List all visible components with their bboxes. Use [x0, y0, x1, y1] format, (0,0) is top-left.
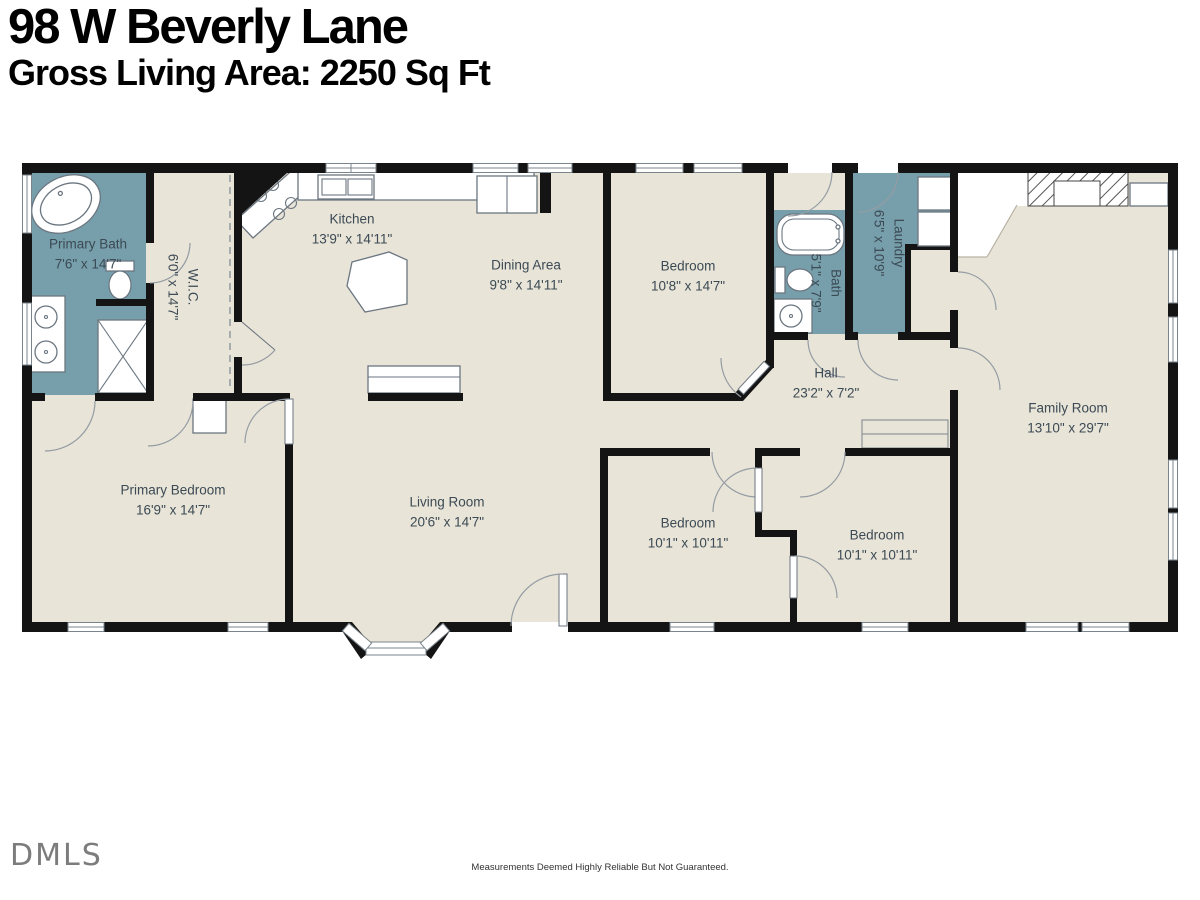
buffet-table: [368, 366, 460, 393]
room-label-dining: Dining Area 9'8" x 14'11": [489, 255, 562, 294]
room-label-primary-bedroom: Primary Bedroom 16'9" x 14'7": [120, 480, 225, 519]
room-label-bedroom-top: Bedroom 10'8" x 14'7": [651, 256, 725, 295]
room-label-kitchen: Kitchen 13'9" x 14'11": [312, 209, 393, 248]
bay-window: [336, 620, 456, 659]
room-label-family-room: Family Room 13'10" x 29'7": [1027, 398, 1109, 437]
bathtub2-icon: [777, 214, 844, 255]
shower-icon: [98, 320, 148, 393]
room-label-hall: Hall 23'2" x 7'2": [793, 363, 860, 402]
laundry-door-opening: [858, 163, 898, 173]
double-vanity-icon: [27, 296, 65, 372]
washer-icon: [918, 177, 951, 210]
rear-door-opening: [788, 163, 832, 173]
dryer-icon: [918, 212, 951, 246]
pantry-closet: [905, 244, 950, 332]
door-leaf-square: [193, 399, 226, 433]
room-label-bath: Bath 5'1" x 7'9": [806, 253, 845, 312]
room-label-wic: W.I.C. 6'0" x 14'7": [163, 254, 202, 321]
room-label-bedroom-b: Bedroom 10'1" x 10'11": [837, 525, 918, 564]
floor-plan: [0, 0, 1200, 900]
disclaimer-text: Measurements Deemed Highly Reliable But …: [0, 862, 1200, 873]
room-label-bedroom-a: Bedroom 10'1" x 10'11": [648, 513, 729, 552]
room-label-primary-bath: Primary Bath 7'6" x 14'7": [49, 234, 127, 273]
hall-closet-shelves: [862, 420, 948, 448]
kitchen-sink-icon: [318, 175, 374, 199]
room-label-living-room: Living Room 20'6" x 14'7": [409, 492, 484, 531]
room-label-laundry: Laundry 6'5" x 10'9": [869, 210, 908, 277]
refrigerator-icon: [477, 176, 537, 213]
